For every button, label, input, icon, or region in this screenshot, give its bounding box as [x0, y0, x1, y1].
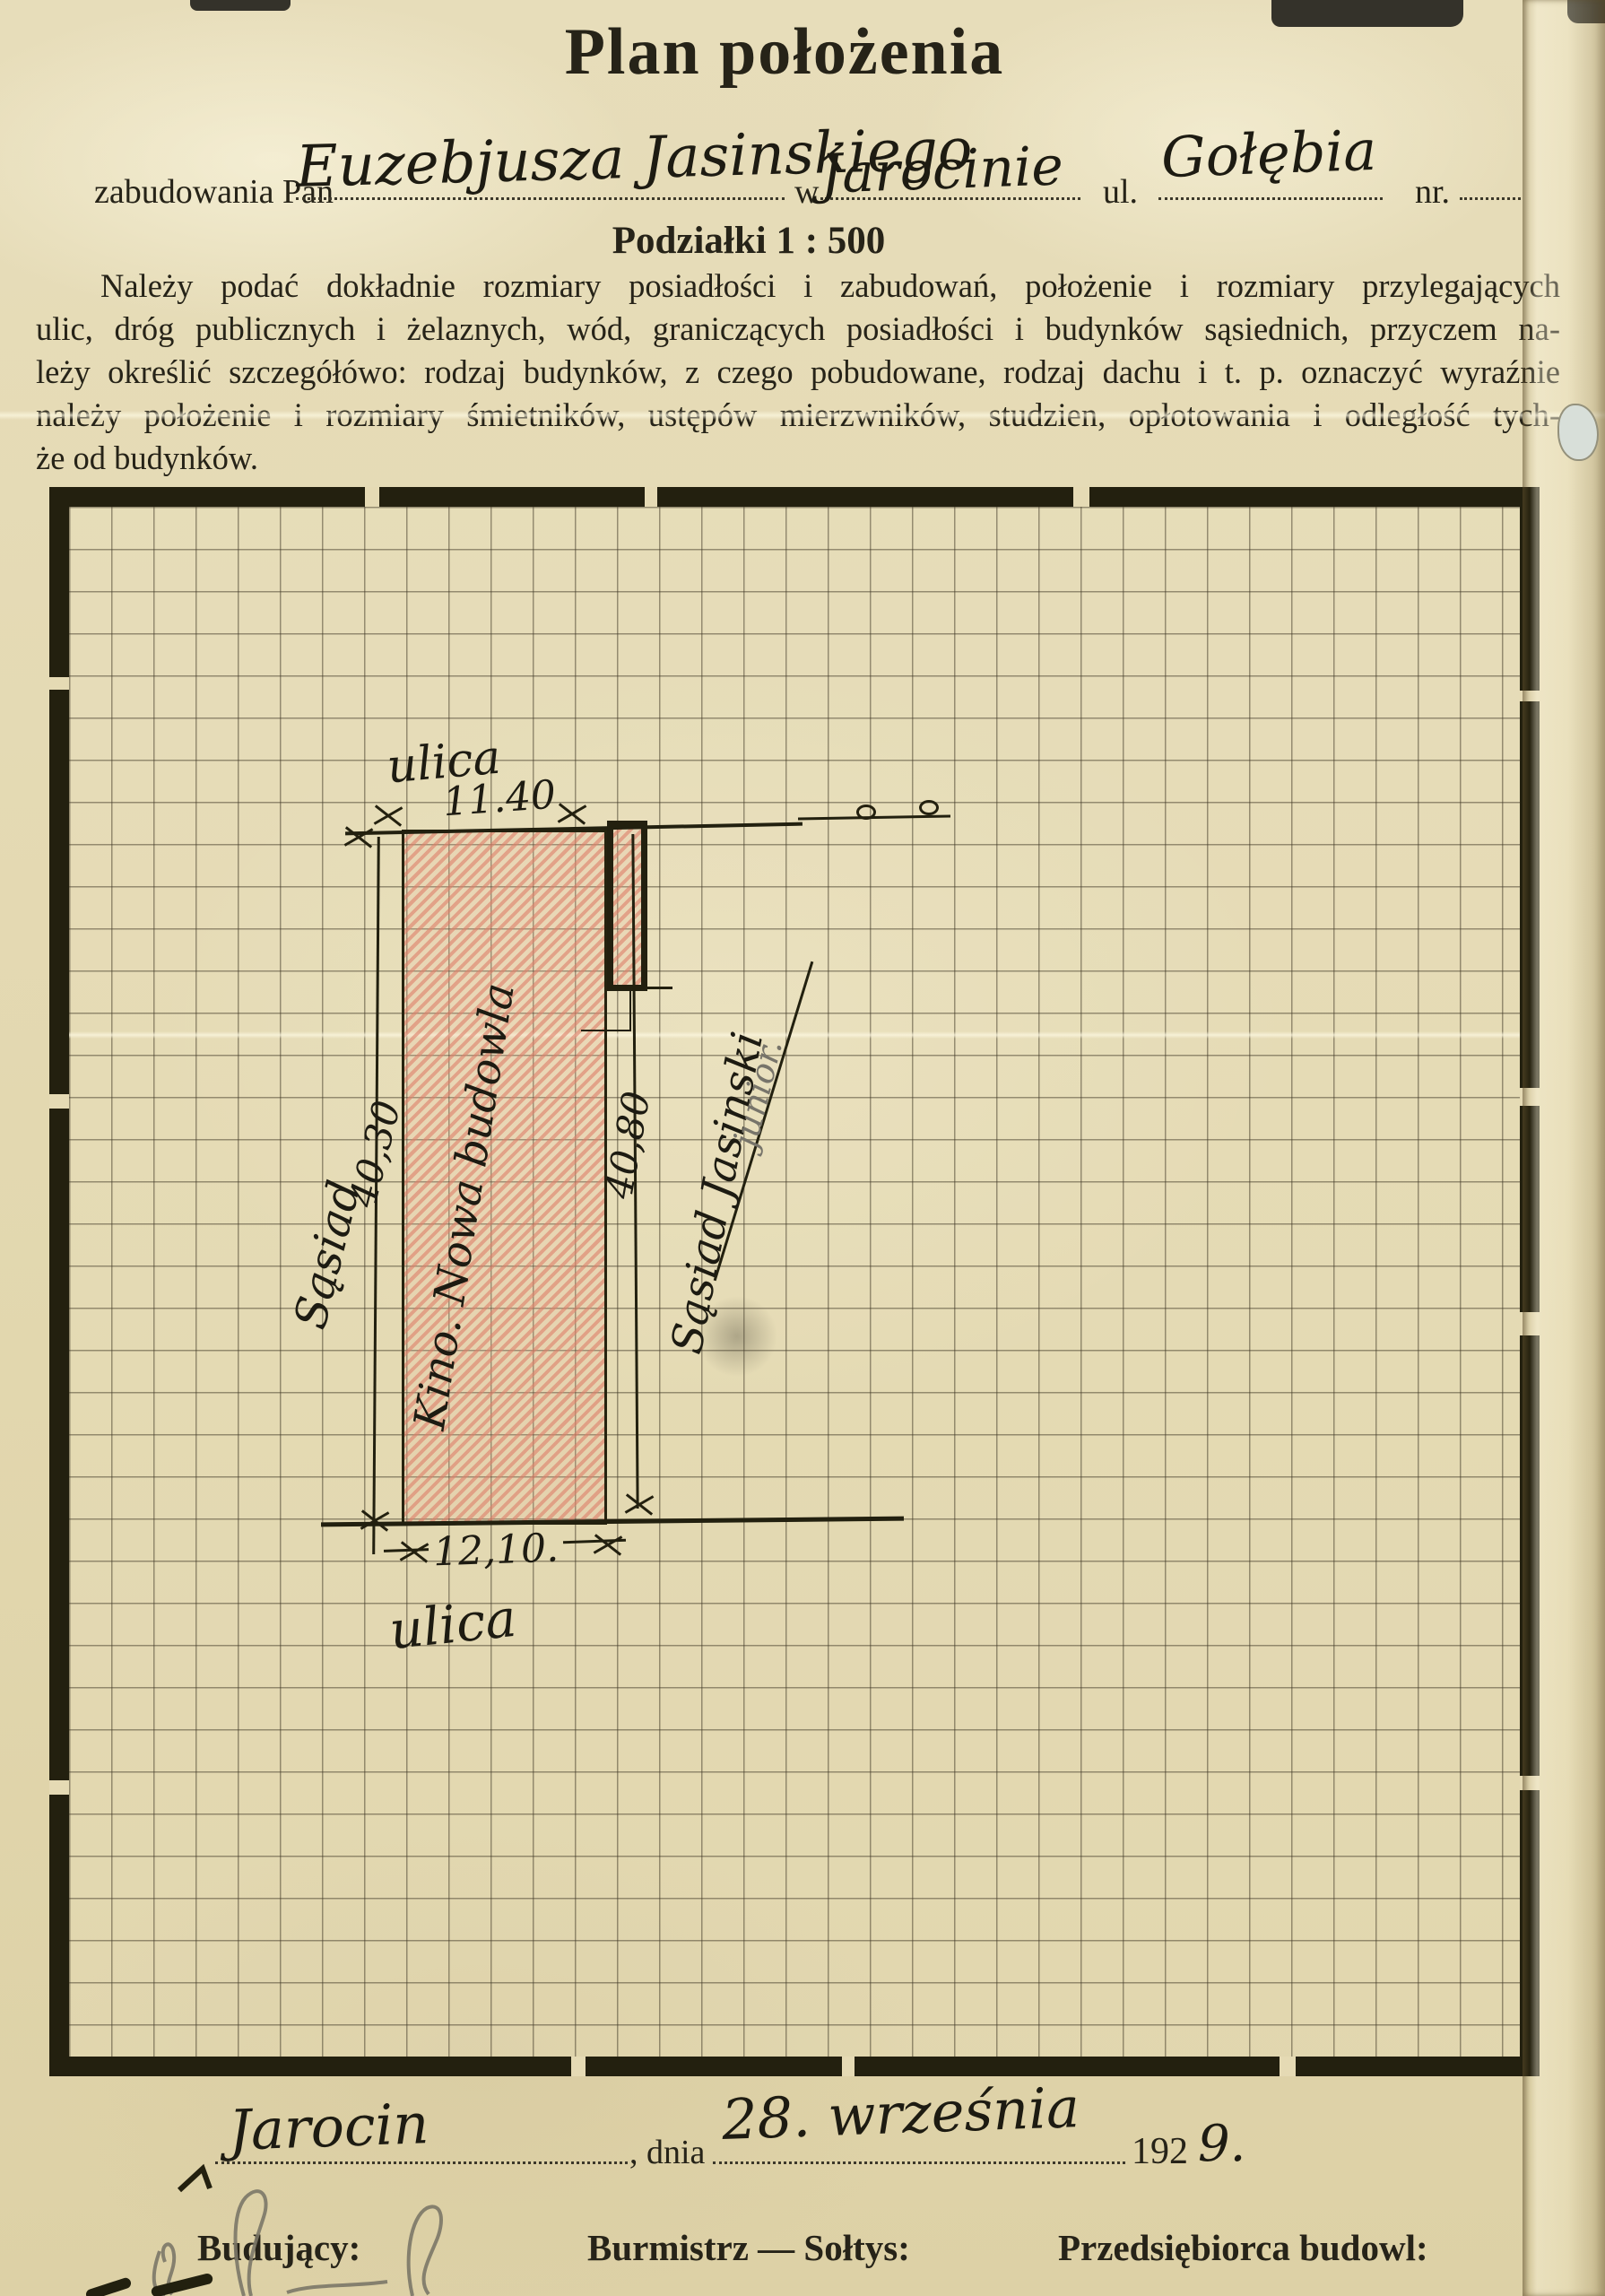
year-printed: 192: [1132, 2130, 1188, 2173]
instructions-paragraph: Należy podać dokładnie rozmiary posiadło…: [36, 265, 1560, 480]
border-gap: [842, 2057, 855, 2076]
border-gap: [49, 1094, 69, 1109]
paper-fold: [1523, 0, 1605, 2296]
border-gap: [645, 487, 657, 507]
annex-wall-line: [647, 987, 672, 989]
dimension-tick: [372, 799, 404, 831]
paper-crease: [0, 411, 1605, 420]
instructions-line: ulic, dróg publicznych i żelaznych, wód,…: [36, 308, 1560, 351]
border-gap: [49, 677, 69, 690]
city-handwriting: Jarocinie: [820, 135, 1064, 205]
graphite-smudge: [697, 1296, 777, 1377]
instructions-line: Należy podać dokładnie rozmiary posiadło…: [36, 265, 1560, 308]
dimension-tick: [592, 1528, 624, 1561]
border-gap: [571, 2057, 586, 2076]
street-handwriting: Gołębia: [1160, 117, 1378, 190]
ink-squiggle: [856, 804, 876, 820]
place-fill-line: [215, 2161, 628, 2164]
place-handwriting: Jarocin: [228, 2091, 430, 2163]
annex-outline: [607, 821, 647, 991]
street-fill-line: [1158, 197, 1383, 200]
dimension-tick: [623, 1488, 655, 1520]
form-street-label: ul.: [1103, 172, 1138, 212]
border-gap: [49, 1780, 69, 1795]
form-in-label: w: [794, 172, 819, 212]
border-gap: [365, 487, 379, 507]
dimension-tick: [343, 821, 375, 853]
date-fill-line: [713, 2161, 1125, 2164]
plan-grid: [69, 507, 1520, 2057]
scale-heading: Podziałki 1 : 500: [0, 219, 1497, 263]
year-handwriting: 9.: [1198, 2115, 1245, 2173]
scan-shadow-top-left: [190, 0, 291, 11]
scanned-site-plan-document: Plan położenia zabudowania Pan Euzebjusz…: [0, 0, 1605, 2296]
border-gap: [1073, 487, 1089, 507]
annex-wall-line: [581, 1030, 629, 1031]
instructions-line: że od budynków.: [36, 437, 1560, 480]
mayor-label: Burmistrz — Sołtys:: [587, 2226, 910, 2269]
date-label: , dnia: [629, 2133, 705, 2172]
instructions-line: leży określić szczegółówo: rodzaj budynk…: [36, 351, 1560, 394]
form-number-label: nr.: [1415, 172, 1450, 212]
date-handwriting: 28. września: [721, 2074, 1080, 2152]
annex-wall-line: [629, 991, 631, 1031]
dimension-tick: [359, 1504, 391, 1536]
number-fill-line: [1460, 197, 1521, 200]
contractor-label: Przedsiębiorca budowl:: [1058, 2226, 1428, 2269]
dimension-bottom: 12,10.: [423, 1525, 568, 1576]
paper-crease: [69, 1031, 1520, 1039]
plan-border: ulica 11.40 Sąsiad 40,30 Kino. Nowa budo…: [49, 487, 1540, 2076]
border-gap: [1280, 2057, 1296, 2076]
ink-squiggle: [919, 800, 939, 815]
ink-mark: [170, 2163, 233, 2199]
page-title: Plan położenia: [0, 14, 1569, 91]
